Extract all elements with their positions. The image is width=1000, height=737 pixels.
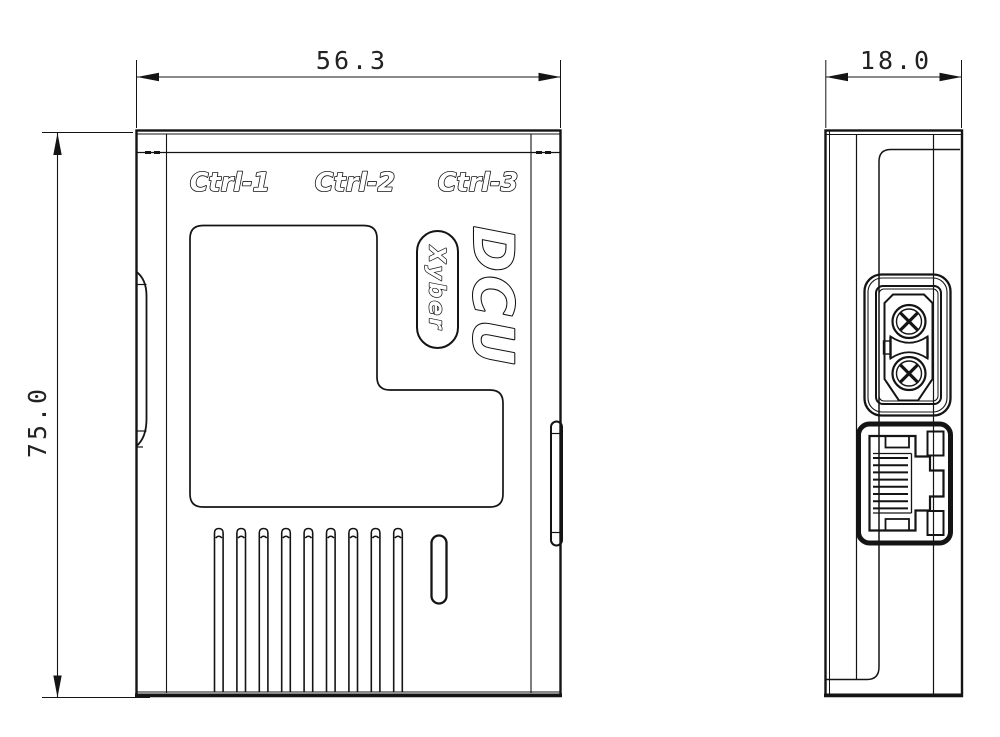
- ctrl-3-label: Ctrl-3: [438, 168, 519, 198]
- dimension-height: 75.0: [23, 133, 150, 698]
- arrowhead-down-icon: [53, 676, 61, 698]
- arrowhead-right-icon: [940, 73, 962, 81]
- arrowhead-up-icon: [53, 133, 61, 155]
- terminal-divider-bowtie-icon: [884, 337, 928, 359]
- ctrl-2-label: Ctrl-2: [315, 168, 396, 198]
- technical-drawing-page: 56.3 75.0 18.0 Ctrl-1: [0, 0, 1000, 737]
- brand-name-label: Xyber: [424, 244, 449, 331]
- arrowhead-left-icon: [826, 73, 848, 81]
- terminal-screw-top-icon: [893, 305, 926, 338]
- label-panel-outline: [190, 226, 503, 508]
- product-name-logo: DCU: [461, 226, 525, 369]
- ctrl-labels: Ctrl-1 Ctrl-2 Ctrl-3: [190, 168, 519, 198]
- arrowhead-right-icon: [539, 73, 561, 81]
- dimension-width: 56.3: [137, 46, 561, 128]
- rj45-frame: [859, 424, 951, 543]
- vent-slots: [215, 529, 403, 693]
- power-connector: [865, 275, 951, 416]
- rj45-ethernet-port: [859, 424, 951, 543]
- dimension-depth: 18.0: [826, 46, 962, 128]
- side-view: [824, 131, 963, 697]
- xyber-badge: Xyber: [417, 231, 458, 348]
- depth-dimension-value: 18.0: [860, 46, 932, 75]
- front-view: Ctrl-1 Ctrl-2 Ctrl-3 DCU Xyber: [135, 131, 562, 697]
- slot-opening: [432, 536, 447, 604]
- width-dimension-value: 56.3: [316, 46, 388, 75]
- ctrl-1-label: Ctrl-1: [190, 168, 271, 198]
- arrowhead-left-icon: [137, 73, 159, 81]
- height-dimension-value: 75.0: [23, 386, 52, 458]
- dcu-technical-drawing: 56.3 75.0 18.0 Ctrl-1: [0, 0, 1000, 737]
- terminal-screw-bottom-icon: [893, 357, 926, 390]
- rj45-socket-outline: [870, 436, 944, 531]
